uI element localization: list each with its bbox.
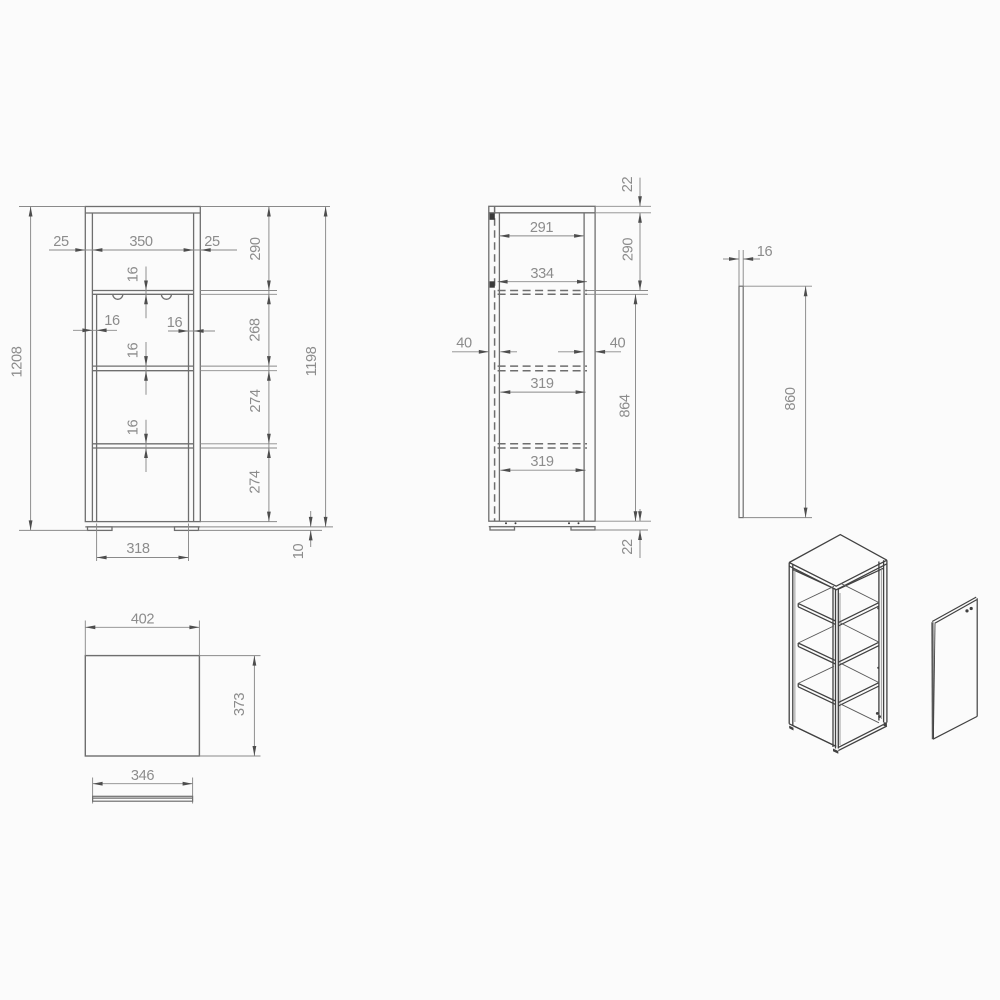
svg-text:25: 25 [204, 234, 220, 250]
svg-text:373: 373 [232, 693, 248, 716]
svg-text:40: 40 [456, 336, 472, 352]
svg-text:350: 350 [129, 234, 152, 250]
svg-text:864: 864 [617, 394, 633, 417]
svg-text:402: 402 [131, 611, 154, 627]
svg-text:290: 290 [620, 238, 636, 261]
svg-text:16: 16 [126, 267, 142, 283]
svg-text:10: 10 [291, 544, 307, 560]
svg-text:16: 16 [126, 420, 142, 436]
svg-text:860: 860 [783, 387, 799, 410]
svg-text:16: 16 [104, 313, 120, 329]
svg-text:346: 346 [131, 768, 154, 784]
svg-text:22: 22 [620, 539, 636, 555]
svg-text:25: 25 [53, 234, 69, 250]
svg-text:334: 334 [530, 266, 553, 282]
svg-text:16: 16 [126, 343, 142, 359]
svg-text:319: 319 [530, 376, 553, 392]
svg-text:291: 291 [530, 220, 553, 236]
svg-text:1208: 1208 [10, 346, 26, 377]
svg-text:319: 319 [530, 454, 553, 470]
svg-text:22: 22 [620, 177, 636, 193]
svg-text:1198: 1198 [304, 346, 320, 376]
svg-text:40: 40 [610, 336, 626, 352]
svg-text:16: 16 [167, 315, 183, 331]
svg-text:274: 274 [248, 470, 264, 493]
svg-text:318: 318 [126, 541, 149, 557]
svg-text:16: 16 [757, 244, 773, 260]
svg-text:268: 268 [248, 318, 264, 341]
svg-text:290: 290 [248, 237, 264, 260]
svg-text:274: 274 [248, 389, 264, 412]
